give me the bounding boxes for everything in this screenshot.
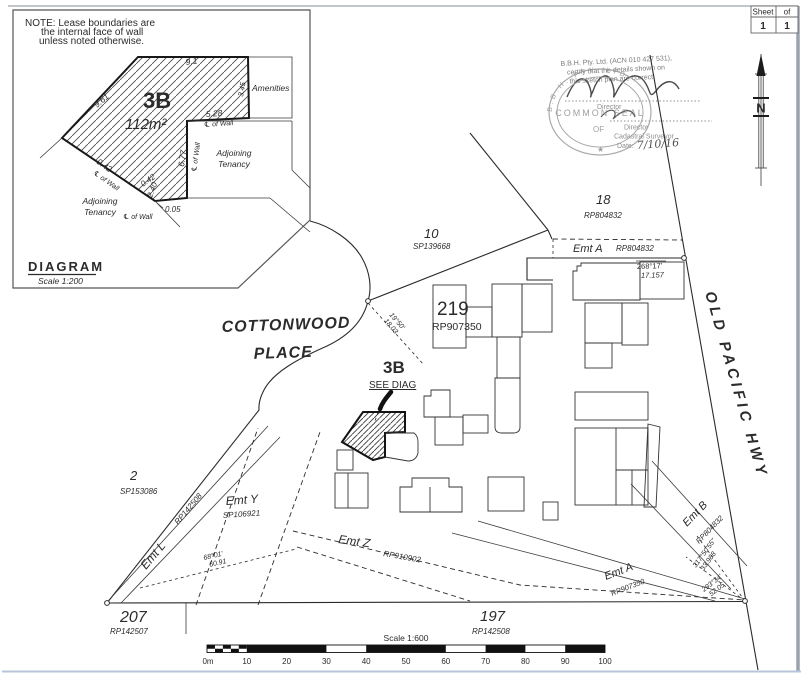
- emt-a-top-label: Emt A: [573, 243, 603, 255]
- svg-text:10: 10: [242, 657, 251, 666]
- lot-3b-number: 3B: [383, 358, 405, 377]
- amenities-label: Amenities: [251, 83, 290, 93]
- bearing-293-34: 293°34' 52.05: [700, 572, 730, 600]
- see-diag-label: SEE DIAG: [369, 380, 416, 391]
- certification-stamp: B.B.H. Pty. Ltd. (ACN 010 427 531), cert…: [547, 55, 712, 155]
- emt-z-label: Emt Z: [338, 532, 372, 550]
- adjoining-tenancy-left: Adjoining Tenancy: [82, 196, 118, 217]
- buildings: [335, 262, 684, 520]
- lot-197-plan: RP142508: [472, 627, 510, 636]
- inset-area: 112m²: [125, 116, 167, 133]
- lot-2-plan: SP153086: [120, 487, 158, 496]
- svg-text:50: 50: [402, 657, 411, 666]
- emt-z-plan: RP910902: [383, 549, 422, 565]
- lot-219-plan: RP907350: [432, 321, 482, 333]
- scale-bar: Scale 1:600 0m 10 20 30 40 50 60 70 80 9…: [202, 633, 612, 666]
- adjoining-tenancy-right: Adjoining Tenancy: [216, 148, 252, 169]
- svg-text:30: 30: [322, 657, 331, 666]
- svg-text:PLACE: PLACE: [253, 344, 313, 363]
- survey-plan-page: Sheet of 1 1 N B.B.H. Pty. Ltd. (ACN 010…: [0, 0, 806, 683]
- lot-197-number: 197: [480, 608, 506, 625]
- svg-text:80: 80: [521, 657, 530, 666]
- inset-lot-number: 3B: [143, 88, 171, 113]
- sheet-total: 1: [784, 21, 790, 32]
- seal-star-icon: ★: [597, 145, 604, 154]
- lease-area-3b-plan: [342, 412, 405, 460]
- lot-18-plan: RP804832: [584, 211, 622, 220]
- road-name-hwy: OLD PACIFIC HWY: [701, 289, 771, 480]
- north-label: N: [756, 101, 765, 116]
- lot-18-number: 18: [596, 192, 611, 207]
- scale-bar-ticks: 0m 10 20 30 40 50 60 70 80 90 100: [202, 657, 612, 666]
- seal-of: OF: [593, 125, 604, 134]
- road-name-cottonwood: COTTONWOOD PLACE: [221, 315, 351, 364]
- svg-text:20: 20: [282, 657, 291, 666]
- dim-9-1: 9.1: [185, 55, 198, 67]
- survey-marks: [105, 256, 748, 606]
- emt-a-btm-label: Emt A: [603, 561, 635, 583]
- emt-y-plan: SP106921: [223, 508, 261, 520]
- svg-text:70: 70: [481, 657, 490, 666]
- bearing-19-50: 19°50' 18.03: [381, 311, 406, 337]
- emt-a-top-plan: RP804832: [616, 244, 654, 253]
- seal-common-seal: COMMON SEAL: [555, 108, 645, 118]
- emt-b-label: Emt B: [681, 499, 710, 529]
- lot-10-plan: SP139668: [413, 242, 451, 251]
- note-line3: unless noted otherwise.: [39, 36, 144, 47]
- date-value: 7/10/16: [636, 136, 679, 152]
- lot-219-number: 219: [437, 299, 469, 320]
- lot-2-number: 2: [129, 468, 138, 483]
- sheet-box: Sheet of 1 1: [751, 6, 798, 33]
- svg-text:Adjoining: Adjoining: [82, 196, 118, 206]
- plan-drawing: Sheet of 1 1 N B.B.H. Pty. Ltd. (ACN 010…: [0, 0, 806, 683]
- north-arrow: N: [753, 54, 769, 186]
- lot-10-number: 10: [424, 226, 439, 241]
- inset-diagram: NOTE: Lease boundaries are the internal …: [13, 10, 310, 288]
- see-diag-arrow: [380, 392, 391, 409]
- scale-bar-title: Scale 1:600: [384, 633, 429, 643]
- diagram-title: DIAGRAM: [28, 259, 104, 274]
- sheet-header: Sheet: [753, 8, 775, 17]
- svg-text:Tenancy: Tenancy: [84, 207, 117, 217]
- svg-text:90: 90: [561, 657, 570, 666]
- emt-l-label: Emt L: [138, 539, 169, 572]
- svg-text:0m: 0m: [202, 657, 213, 666]
- sheet-of-header: of: [784, 8, 791, 17]
- svg-text:40: 40: [362, 657, 371, 666]
- lot-207-plan: RP142507: [110, 627, 148, 636]
- svg-text:Tenancy: Tenancy: [218, 159, 251, 169]
- bearing-68-01: 68°01' 60.91: [203, 549, 228, 569]
- svg-text:100: 100: [598, 657, 612, 666]
- distance-17-157: 17.157: [641, 270, 665, 280]
- lot-207-number: 207: [119, 609, 148, 626]
- svg-text:60: 60: [441, 657, 450, 666]
- sheet-number: 1: [760, 21, 766, 32]
- emt-y-label: Emt Y: [225, 492, 259, 508]
- dim-0-05: 0.05: [165, 205, 181, 214]
- diagram-scale: Scale 1:200: [38, 276, 83, 286]
- cl-of-wall-4: ℄ of Wall: [123, 213, 153, 221]
- svg-text:Adjoining: Adjoining: [216, 148, 252, 158]
- svg-text:COTTONWOOD: COTTONWOOD: [221, 315, 350, 336]
- dim-5-28: 5.28: [205, 108, 222, 119]
- north-arrowhead-icon: [757, 54, 766, 76]
